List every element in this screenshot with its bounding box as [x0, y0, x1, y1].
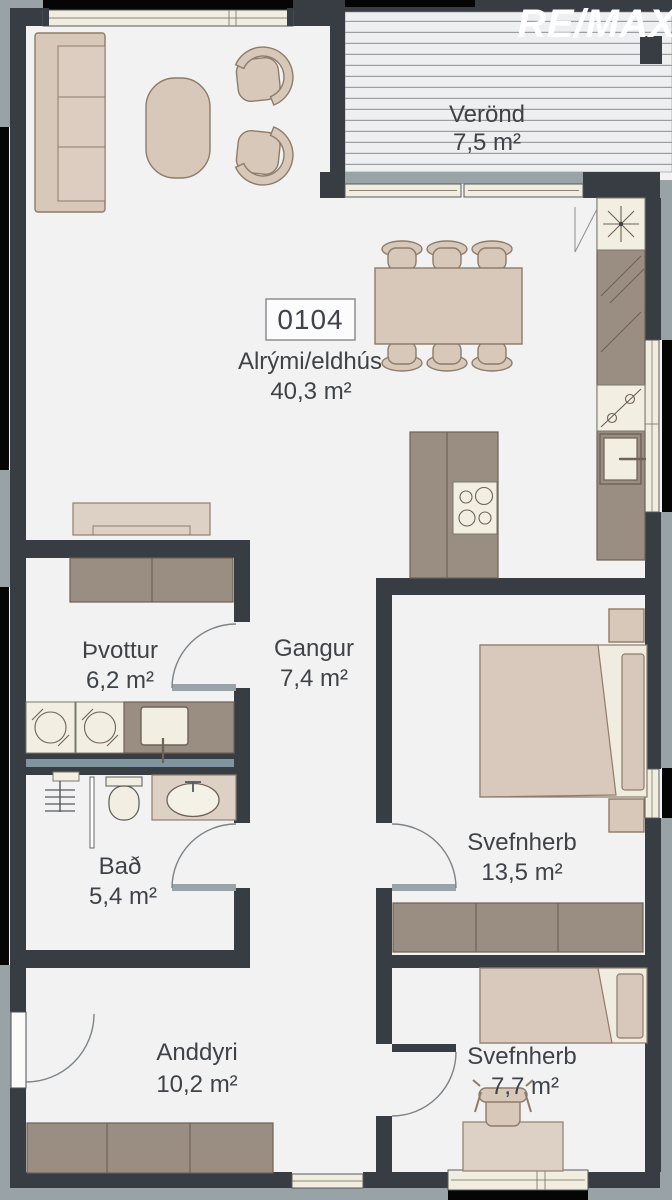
kitchen-island [410, 432, 498, 578]
room-label-svefnherb-main: Svefnherb [467, 829, 576, 856]
room-area-alrymi: 40,3 m² [270, 378, 351, 405]
pillow [617, 974, 643, 1038]
room-area-svefnherb-small: 7,7 m² [491, 1073, 559, 1100]
unit-number: 0104 [277, 304, 343, 335]
kitchen-sink-icon [597, 385, 645, 431]
remax-logo: RE/MAX [517, 2, 672, 46]
room-label-thvottur: Þvottur [82, 637, 158, 664]
window-anddyri-bottom [292, 1174, 363, 1188]
washer-icon [26, 702, 75, 753]
wardrobe [393, 903, 643, 952]
room-label-bad: Bað [99, 853, 142, 880]
toilet-icon [106, 777, 142, 820]
room-area-svefnherb-main: 13,5 m² [481, 859, 562, 886]
bath-sink-icon [152, 775, 236, 820]
entry-wardrobe [27, 1123, 273, 1173]
nightstand [609, 799, 644, 832]
desk [463, 1122, 563, 1171]
oven-icon [600, 434, 645, 484]
room-area-bad: 5,4 m² [89, 883, 157, 910]
room-area-anddyri: 10,2 m² [156, 1071, 237, 1098]
cooktop-icon [453, 482, 497, 534]
washer-icon [76, 702, 124, 753]
dining-table [375, 241, 522, 371]
coffee-table [146, 78, 210, 178]
room-area-verond: 7,5 m² [453, 129, 521, 156]
room-area-gangur: 7,4 m² [280, 665, 348, 692]
sofa [35, 33, 105, 212]
room-label-gangur: Gangur [274, 635, 354, 662]
sliding-door [320, 172, 660, 198]
window-kitchen-right [645, 340, 659, 512]
room-label-verond: Verönd [449, 101, 525, 128]
room-label-anddyri: Anddyri [156, 1039, 237, 1066]
sideboard [73, 503, 210, 535]
floor-plan: Verönd 7,5 m² 0104 Alrými/eldhús 40,3 m²… [0, 0, 672, 1200]
nightstand [609, 609, 644, 642]
shower-glass [90, 777, 94, 848]
dining-table-top [375, 268, 522, 344]
plumbing-stripe [26, 759, 234, 767]
unit-number-badge: 0104 [266, 299, 355, 340]
window-living-top [43, 8, 293, 26]
room-label-alrymi: Alrými/eldhús [238, 348, 382, 375]
pillow [622, 654, 644, 790]
room-label-svefnherb-small: Svefnherb [467, 1043, 576, 1070]
room-area-thvottur: 6,2 m² [86, 667, 154, 694]
window-bedroom-bottom [448, 1170, 588, 1190]
